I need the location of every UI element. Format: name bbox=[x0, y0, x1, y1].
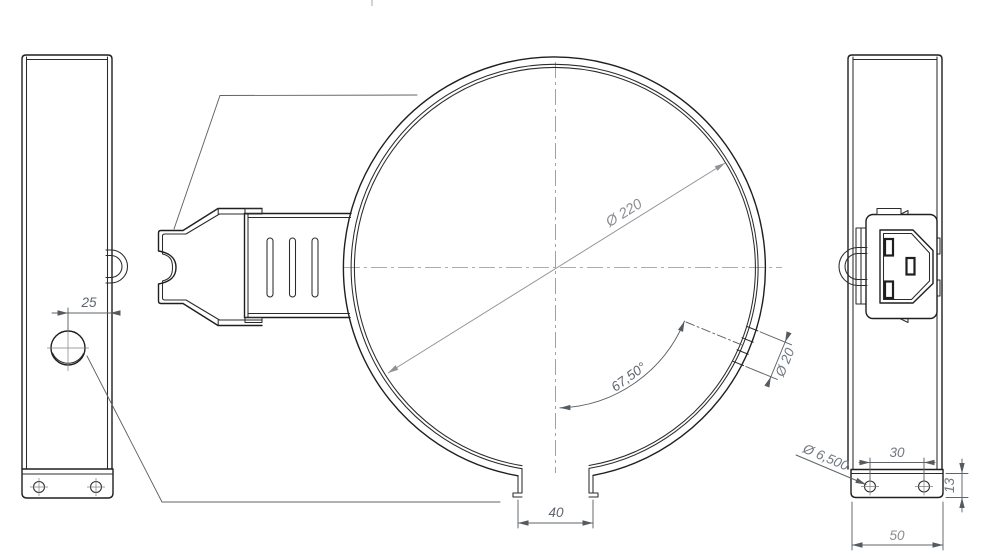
dim-mount-hole: Ø 6,500 bbox=[796, 441, 867, 487]
dim-40-label: 40 bbox=[548, 505, 564, 520]
dim-50-label: 50 bbox=[889, 528, 905, 543]
left-side-view: 25 bbox=[22, 55, 500, 502]
dim-gap-width: 40 bbox=[518, 500, 593, 528]
left-foot bbox=[22, 469, 113, 498]
sleeve-slot bbox=[267, 238, 273, 297]
connector-top-clip bbox=[877, 209, 901, 215]
front-view: Ø 220 67,50° Ø 20 bbox=[159, 0, 803, 528]
dim-ring-diameter: Ø 220 bbox=[387, 161, 727, 376]
dim-mount-hole-label: Ø 6,500 bbox=[800, 441, 851, 474]
technical-drawing-canvas: 25 bbox=[0, 0, 1000, 553]
dim-hole-angle: 67,50° bbox=[560, 320, 742, 411]
sleeve-slot bbox=[312, 238, 318, 297]
dim-hole-diameter-label: Ø 20 bbox=[772, 345, 798, 379]
dim-foot-height: 13 bbox=[942, 459, 968, 512]
dim-30-label: 30 bbox=[889, 445, 905, 460]
left-bar-dee-loop bbox=[106, 250, 128, 283]
left-bar-profile bbox=[22, 55, 112, 469]
dim-25-label: 25 bbox=[80, 295, 97, 310]
clamp-sleeve bbox=[245, 209, 352, 323]
dim-hole-diameter: Ø 20 bbox=[728, 317, 802, 393]
dim-13-label: 13 bbox=[942, 478, 957, 494]
dim-hole-spacing: 30 bbox=[859, 445, 935, 480]
dim-bracket-offset: 25 bbox=[52, 295, 121, 330]
clamp-latch bbox=[159, 209, 263, 326]
ring-band bbox=[343, 57, 765, 476]
right-side-view: 30 Ø 6,500 13 50 bbox=[796, 55, 968, 550]
power-inlet-connector bbox=[839, 209, 940, 323]
button-leader-line bbox=[87, 356, 500, 502]
drawing-sheet: 25 bbox=[0, 0, 1000, 553]
button-boss bbox=[47, 327, 89, 371]
dim-foot-width: 50 bbox=[852, 502, 943, 550]
sleeve-slot bbox=[290, 238, 296, 297]
